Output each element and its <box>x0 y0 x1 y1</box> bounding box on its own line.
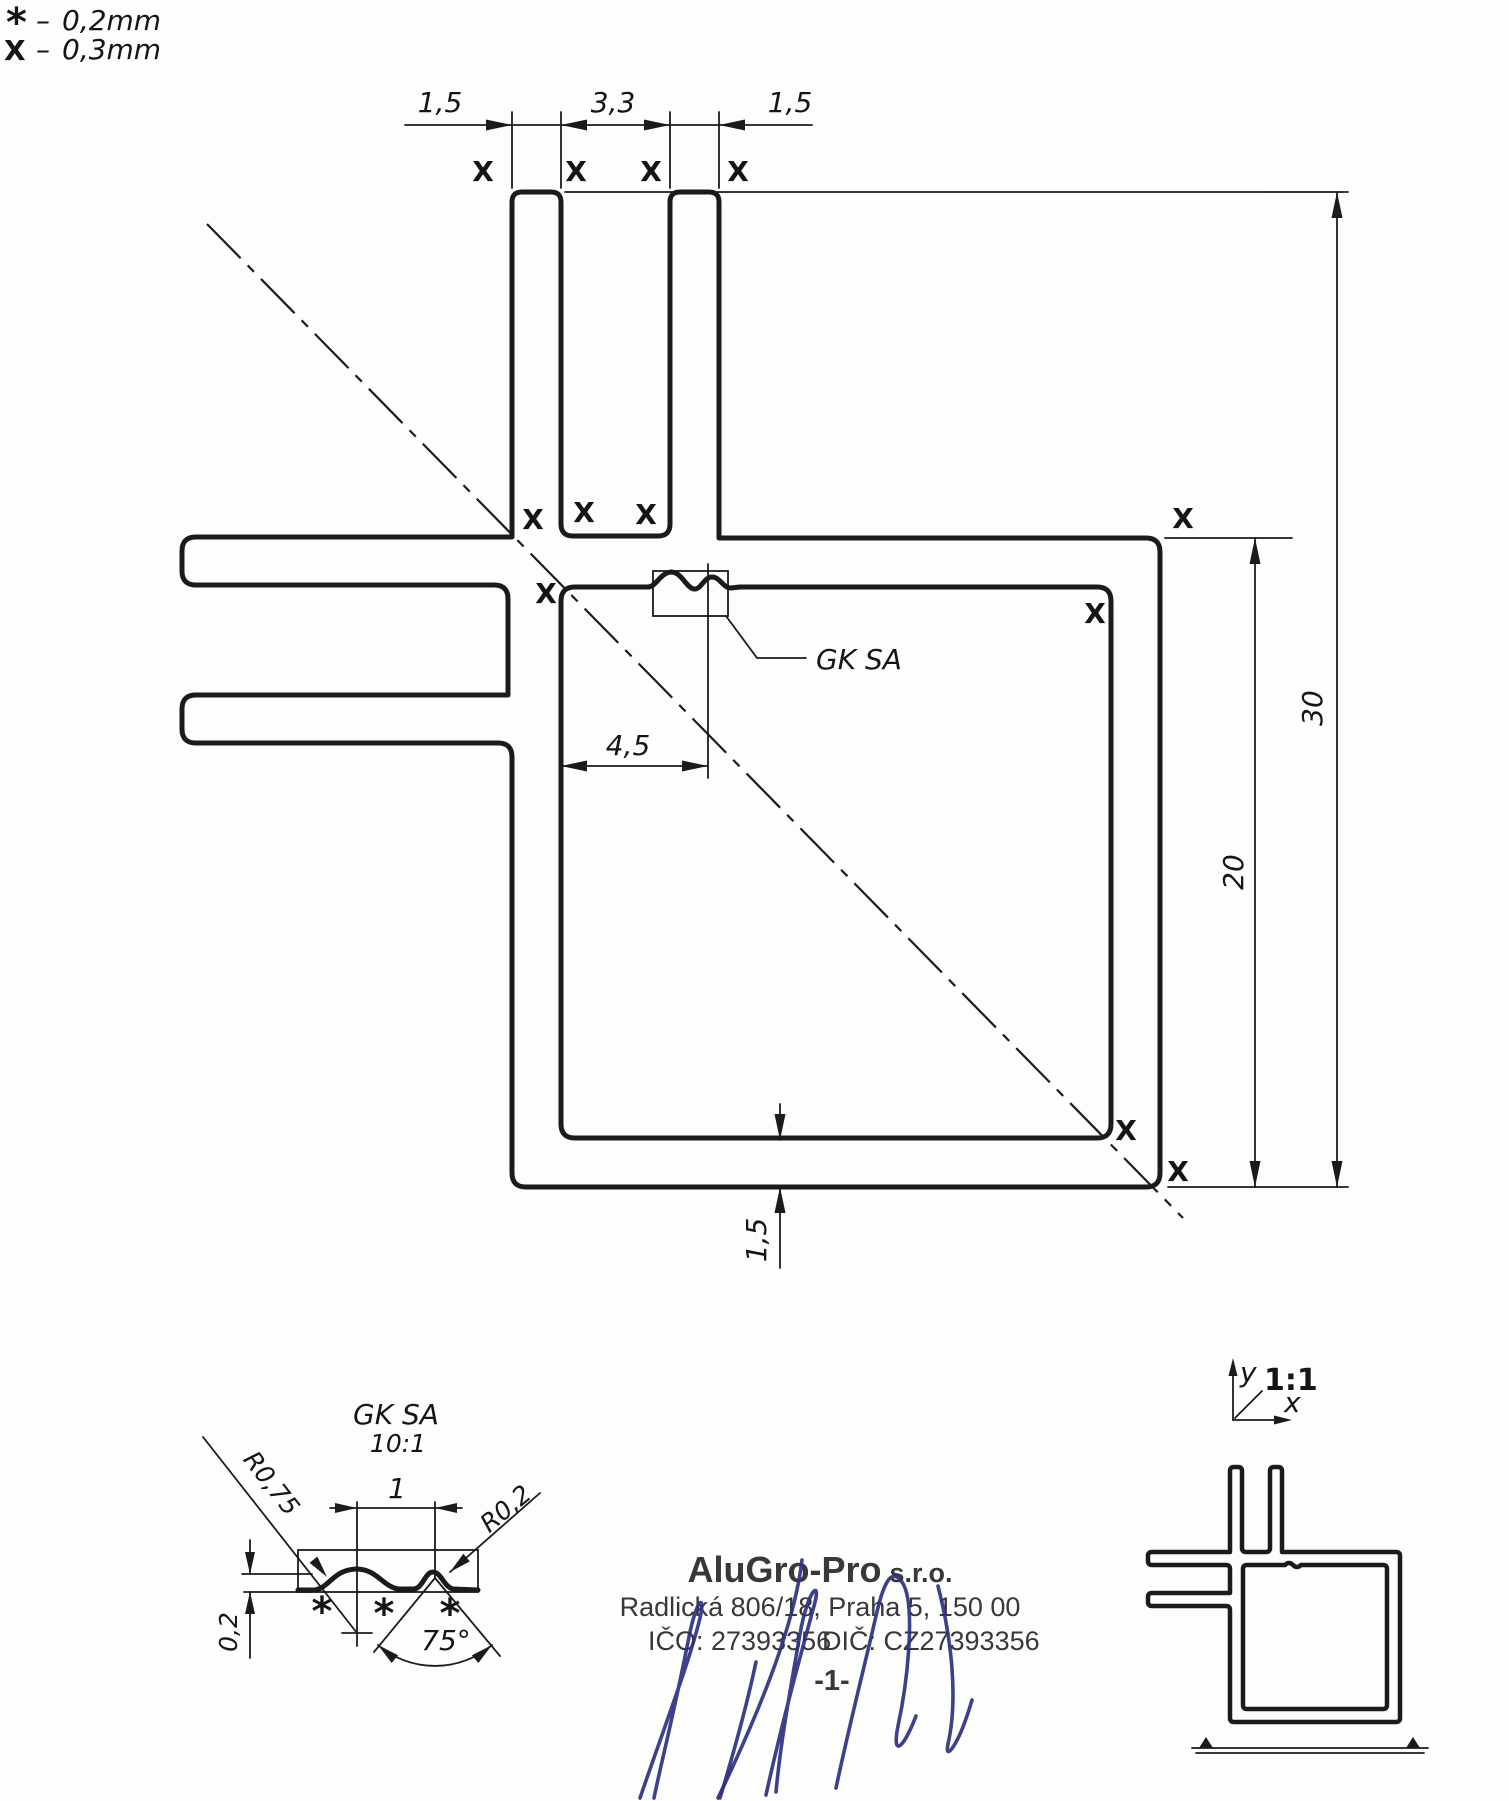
arrowhead <box>1250 1161 1261 1187</box>
x-mark: X <box>565 155 587 188</box>
arrowhead <box>1250 538 1261 564</box>
arrowhead <box>486 120 512 131</box>
top-dimension-group: 1,5 3,3 1,5 <box>405 86 812 188</box>
star-mark: * <box>440 1591 461 1637</box>
x-mark: X <box>640 155 662 188</box>
support-triangle <box>1406 1737 1420 1748</box>
company-address: Radlická 806/18, Praha 5, 150 00 <box>620 1592 1021 1622</box>
callout-leader <box>726 616 806 658</box>
arrowhead <box>335 1503 357 1513</box>
arrowhead <box>644 120 670 131</box>
star-mark: * <box>312 1589 333 1635</box>
diagonal-centerline <box>207 224 1183 1218</box>
arrowhead <box>245 1592 255 1614</box>
dim-wave-pitch: 1 <box>388 1472 406 1505</box>
tolerance-legend: * – 0,2mm X – 0,3mm <box>4 0 161 67</box>
x-mark: X <box>1172 502 1194 535</box>
x-mark: X <box>573 496 595 529</box>
drawing-canvas: * – 0,2mm X – 0,3mm 1,5 3,3 1,5 <box>0 0 1509 1801</box>
x-mark: X <box>1084 597 1106 630</box>
dim-feature-offset: 4,5 <box>606 729 651 762</box>
arrowhead <box>561 761 587 772</box>
legend-x-symbol: X <box>4 34 26 67</box>
y-axis-label: y <box>1239 1356 1257 1389</box>
arrowhead <box>775 1187 786 1213</box>
feature-offset-dimension: 4,5 <box>561 729 708 772</box>
dim-total-height: 30 <box>1296 690 1329 726</box>
x-mark: X <box>522 503 544 536</box>
support-triangle <box>1199 1737 1213 1748</box>
callout-label: GK SA <box>816 643 902 676</box>
radius-label-right: R0,2 <box>474 1479 536 1538</box>
mini-profile-view-1to1 <box>1148 1467 1428 1753</box>
radius-leader <box>203 1437 357 1633</box>
x-mark: X <box>635 498 657 531</box>
detail-view-gksa: GK SA 10:1 0,2 1 R0,75 R0,2 75 <box>203 1398 540 1666</box>
detail-title: GK SA <box>353 1398 439 1431</box>
arrowhead <box>719 120 745 131</box>
arrowhead <box>435 1503 457 1513</box>
company-name: AluGro-Pros.r.o. <box>687 1549 952 1590</box>
x-mark: X <box>1115 1114 1137 1147</box>
surface-marks-body: X X X X X X X X <box>522 496 1194 1188</box>
arrowhead <box>1332 1161 1343 1187</box>
arrowhead <box>1229 1358 1238 1376</box>
x-mark: X <box>1167 1155 1189 1188</box>
arrowhead <box>245 1552 255 1574</box>
page-number: -1- <box>814 1665 849 1697</box>
star-mark: * <box>374 1591 395 1637</box>
axis-indicator: y 1:1 x <box>1229 1356 1318 1425</box>
legend-x-value: 0,3mm <box>62 33 161 66</box>
detail-scale: 10:1 <box>370 1429 426 1458</box>
dim-bottom-wall: 1,5 <box>740 1218 773 1263</box>
profile-outer-outline <box>182 192 1160 1187</box>
company-name-main: AluGro-Pro <box>687 1549 881 1590</box>
height-dimensions: 20 30 <box>565 192 1348 1187</box>
company-dic: DIČ: CZ27393356 <box>822 1625 1040 1656</box>
x-mark: X <box>727 155 749 188</box>
dim-body-height: 20 <box>1217 854 1250 890</box>
x-axis-label: x <box>1283 1386 1301 1419</box>
main-profile-view: 1,5 3,3 1,5 X X X X X X X X X X X X GK S… <box>182 86 1348 1268</box>
x-mark: X <box>535 577 557 610</box>
dim-top-wall-left: 1,5 <box>418 86 463 119</box>
dim-top-wall-right: 1,5 <box>768 86 813 119</box>
axis-diagonal-tick <box>1235 1391 1262 1418</box>
legend-x-separator: – <box>36 33 50 66</box>
dim-wave-depth: 0,2 <box>214 1612 243 1652</box>
gksa-callout: GK SA <box>653 564 902 778</box>
arrowhead <box>1332 192 1343 218</box>
x-mark: X <box>472 155 494 188</box>
mini-profile-outer <box>1148 1467 1400 1722</box>
mini-profile-cavity <box>1243 1563 1387 1709</box>
arrowhead <box>682 761 708 772</box>
company-name-legal: s.r.o. <box>889 1558 952 1588</box>
dim-top-groove: 3,3 <box>591 86 636 119</box>
arrowhead <box>561 120 587 131</box>
surface-marks-top: X X X X <box>472 155 749 188</box>
technical-drawing-sheet: * – 0,2mm X – 0,3mm 1,5 3,3 1,5 <box>0 0 1509 1801</box>
radius-label-left: R0,75 <box>238 1446 306 1521</box>
